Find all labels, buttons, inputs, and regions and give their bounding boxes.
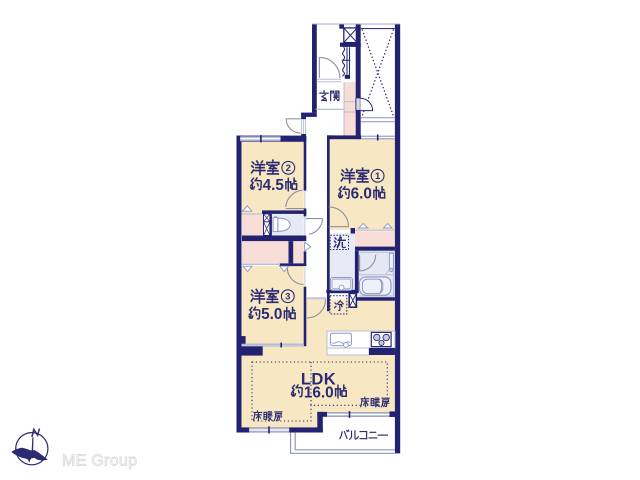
svg-text:1: 1 [375,171,381,182]
svg-text:6.0: 6.0 [351,186,372,203]
svg-text:3: 3 [285,292,290,303]
svg-text:16.0: 16.0 [304,385,334,402]
svg-text:ME Group: ME Group [62,453,137,470]
svg-text:4.5: 4.5 [263,177,285,194]
svg-text:2: 2 [286,163,291,174]
svg-text:5.0: 5.0 [261,306,282,323]
